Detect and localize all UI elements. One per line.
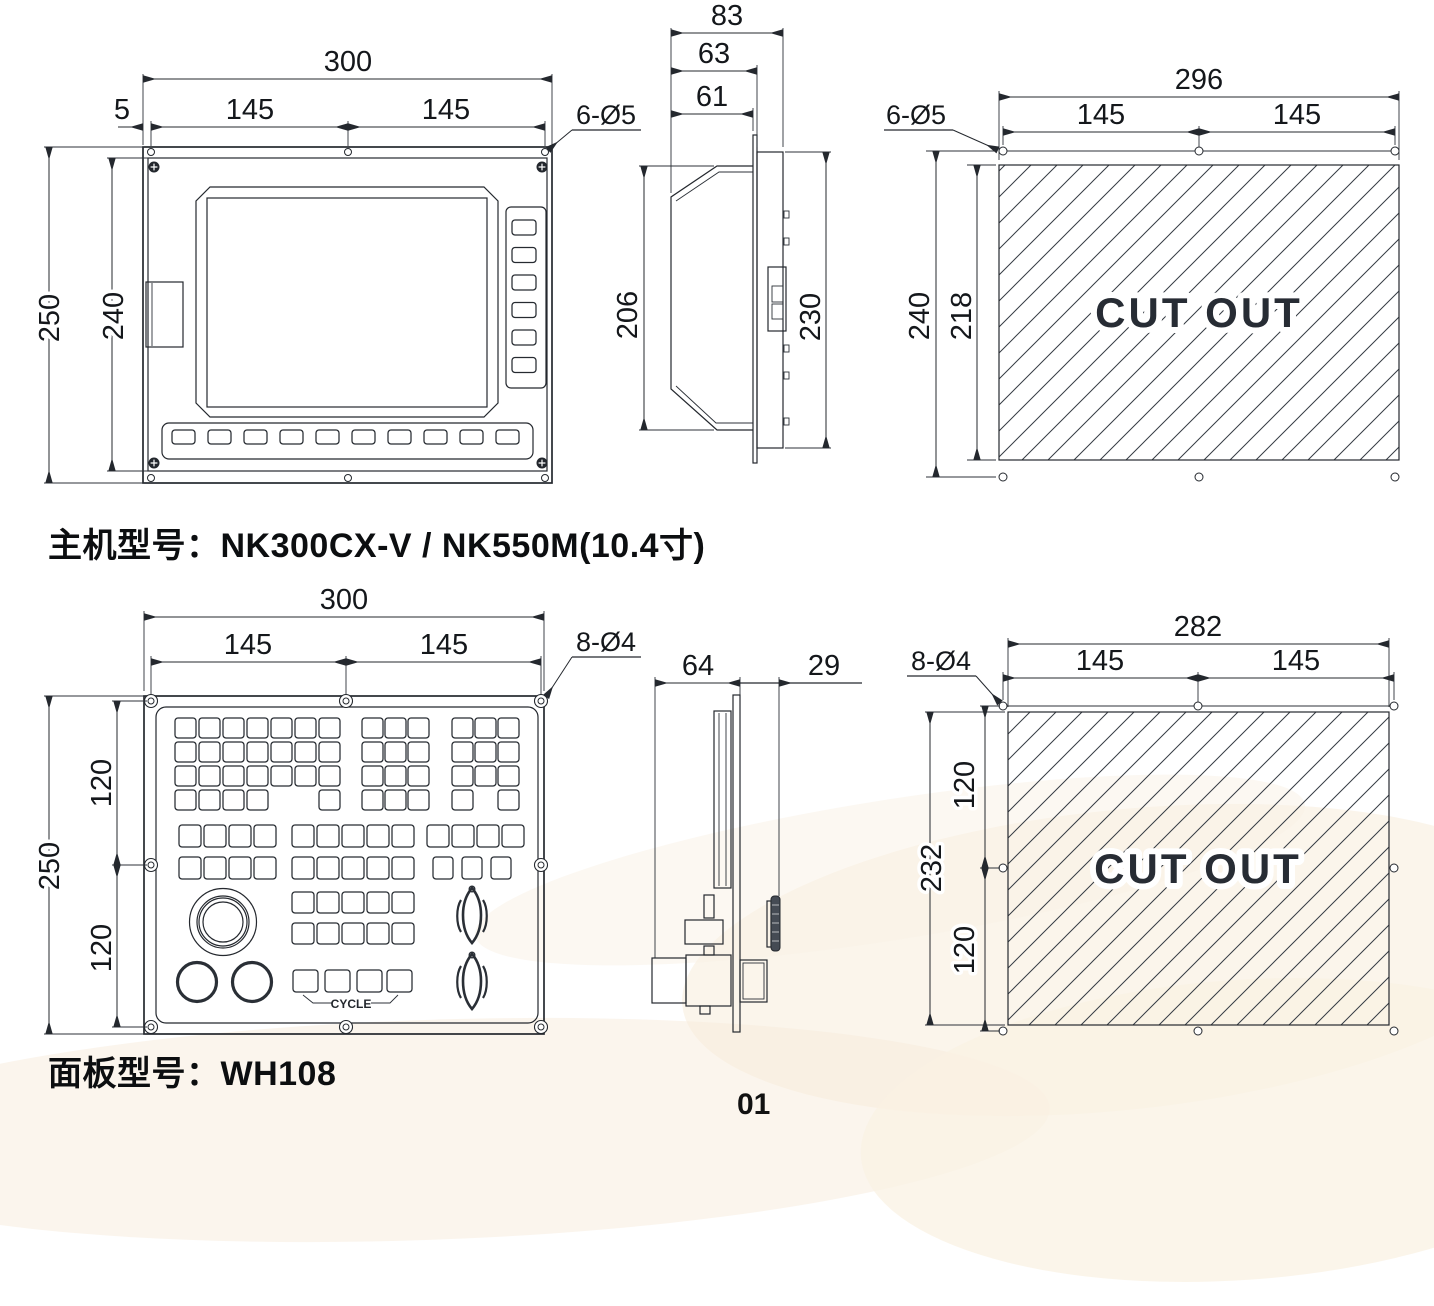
mounting-hole bbox=[345, 149, 352, 156]
key bbox=[342, 892, 364, 913]
key bbox=[477, 825, 499, 847]
svg-text:145: 145 bbox=[226, 94, 274, 126]
svg-text:145: 145 bbox=[1273, 99, 1321, 131]
key bbox=[362, 742, 383, 762]
key bbox=[292, 892, 314, 913]
mounting-hole bbox=[1195, 147, 1203, 155]
key bbox=[452, 766, 473, 786]
key bbox=[316, 430, 339, 444]
key bbox=[342, 923, 364, 944]
key bbox=[175, 766, 196, 786]
key bbox=[367, 923, 389, 944]
panel-key-grid bbox=[175, 718, 524, 992]
svg-text:145: 145 bbox=[1076, 645, 1124, 677]
key bbox=[271, 766, 292, 786]
key bbox=[247, 718, 268, 738]
mounting-hole bbox=[999, 702, 1007, 710]
svg-text:300: 300 bbox=[320, 584, 368, 616]
key bbox=[512, 220, 536, 235]
key bbox=[175, 742, 196, 762]
key bbox=[319, 766, 340, 786]
svg-text:8-Ø4: 8-Ø4 bbox=[911, 646, 971, 676]
mounting-hole bbox=[1195, 473, 1203, 481]
knob-lens bbox=[463, 888, 481, 943]
key bbox=[175, 718, 196, 738]
svg-text:8-Ø4: 8-Ø4 bbox=[576, 627, 636, 657]
svg-text:120: 120 bbox=[949, 761, 981, 809]
svg-text:6-Ø5: 6-Ø5 bbox=[886, 100, 946, 130]
dim-host-side-inner-depth: 61 bbox=[671, 81, 753, 131]
key bbox=[452, 790, 473, 810]
key bbox=[362, 766, 383, 786]
svg-text:5: 5 bbox=[114, 94, 130, 126]
dim-host-cutout-inner-height: 218 bbox=[946, 165, 996, 460]
key bbox=[179, 857, 201, 879]
key bbox=[317, 857, 339, 879]
mounting-hole bbox=[542, 149, 549, 156]
knob-arc-right bbox=[483, 900, 487, 932]
panel-side-front-parts bbox=[740, 896, 780, 1002]
mounting-hole bbox=[148, 475, 155, 482]
key bbox=[199, 766, 220, 786]
svg-text:63: 63 bbox=[698, 38, 730, 70]
mounting-hole bbox=[535, 1021, 548, 1034]
key bbox=[388, 430, 411, 444]
key bbox=[352, 430, 375, 444]
key bbox=[295, 718, 316, 738]
key bbox=[408, 790, 429, 810]
host-flange-outline bbox=[143, 147, 552, 483]
key bbox=[512, 275, 536, 290]
svg-text:145: 145 bbox=[422, 94, 470, 126]
svg-text:218: 218 bbox=[946, 292, 978, 340]
key bbox=[271, 742, 292, 762]
dim-host-front-offset: 5 bbox=[114, 94, 143, 127]
handwheel-knob-profile bbox=[771, 896, 780, 951]
host-side-view: 83 63 61 206 230 bbox=[612, 0, 831, 463]
host-softkey-column bbox=[506, 207, 546, 388]
key bbox=[271, 718, 292, 738]
svg-text:250: 250 bbox=[34, 294, 66, 342]
key bbox=[317, 892, 339, 913]
key bbox=[223, 766, 244, 786]
key bbox=[392, 825, 414, 847]
key bbox=[496, 430, 519, 444]
mounting-hole bbox=[340, 695, 353, 708]
key bbox=[392, 923, 414, 944]
mounting-hole bbox=[999, 864, 1007, 872]
key bbox=[475, 718, 496, 738]
host-flange-plate bbox=[757, 152, 783, 448]
panel-side-rear-parts bbox=[652, 711, 731, 1014]
svg-text:120: 120 bbox=[86, 924, 118, 972]
panel-side-view: 64 29 bbox=[652, 650, 862, 1032]
knob-arc-right bbox=[483, 966, 487, 998]
page-number: 01 bbox=[737, 1088, 770, 1122]
mounting-hole bbox=[999, 473, 1007, 481]
svg-text:240: 240 bbox=[98, 292, 130, 340]
dim-panel-side-rear-depth: 64 bbox=[655, 650, 740, 958]
host-model-title-label: 主机型号： bbox=[48, 527, 221, 565]
dim-panel-front-halves: 145 145 bbox=[151, 629, 541, 694]
key bbox=[433, 857, 453, 879]
mounting-hole bbox=[340, 1021, 353, 1034]
key bbox=[427, 825, 449, 847]
key bbox=[424, 430, 447, 444]
host-screen bbox=[196, 187, 498, 417]
key bbox=[199, 790, 220, 810]
dim-panel-cutout-segments: 120 120 bbox=[949, 706, 1000, 1031]
key bbox=[208, 430, 231, 444]
mounting-hole bbox=[535, 695, 548, 708]
dim-panel-cutout-width: 282 bbox=[1008, 611, 1389, 707]
key bbox=[392, 892, 414, 913]
rotary-knob-icon bbox=[457, 952, 487, 1009]
mounting-hole bbox=[999, 147, 1007, 155]
key bbox=[512, 248, 536, 263]
key bbox=[498, 790, 519, 810]
key bbox=[342, 825, 364, 847]
key bbox=[387, 970, 412, 992]
key bbox=[223, 718, 244, 738]
key bbox=[367, 857, 389, 879]
key bbox=[362, 790, 383, 810]
dim-host-cutout-holes-label: 6-Ø5 bbox=[884, 100, 998, 150]
mounting-hole bbox=[1194, 1027, 1202, 1035]
key bbox=[367, 892, 389, 913]
panel-handwheel bbox=[190, 889, 257, 956]
panel-model-title: 面板型号：WH108 bbox=[48, 1046, 336, 1095]
panel-round-button bbox=[178, 963, 217, 1002]
key bbox=[280, 430, 303, 444]
key bbox=[199, 718, 220, 738]
host-front-view: 300 145 145 5 6-Ø5 250 bbox=[34, 46, 641, 483]
key bbox=[292, 857, 314, 879]
key bbox=[254, 857, 276, 879]
svg-text:206: 206 bbox=[612, 291, 644, 339]
drawing-page: { "host": { "title_label": "主机型号：", "tit… bbox=[0, 0, 1434, 1098]
mounting-hole bbox=[1390, 864, 1398, 872]
host-model-title-value: NK300CX-V / NK550M(10.4寸) bbox=[221, 527, 706, 565]
panel-plate-profile bbox=[733, 695, 740, 1032]
key bbox=[325, 970, 350, 992]
key bbox=[357, 970, 382, 992]
key bbox=[408, 742, 429, 762]
knob-arc-left bbox=[457, 966, 461, 998]
key bbox=[362, 718, 383, 738]
host-bottom-key-strip bbox=[162, 423, 533, 459]
key bbox=[498, 742, 519, 762]
panel-cutout-label: CUT OUT bbox=[1094, 845, 1302, 892]
mounting-hole bbox=[345, 475, 352, 482]
key bbox=[498, 766, 519, 786]
key bbox=[385, 790, 406, 810]
key bbox=[512, 358, 536, 373]
svg-text:29: 29 bbox=[808, 650, 840, 682]
key bbox=[229, 857, 251, 879]
svg-text:145: 145 bbox=[224, 629, 272, 661]
key bbox=[244, 430, 267, 444]
dim-host-side-flange-height: 230 bbox=[785, 152, 831, 448]
host-cutout-label: CUT OUT bbox=[1095, 289, 1303, 336]
mounting-hole bbox=[1391, 473, 1399, 481]
host-card-door bbox=[146, 282, 183, 347]
mounting-hole bbox=[148, 149, 155, 156]
key bbox=[408, 766, 429, 786]
key bbox=[385, 766, 406, 786]
mounting-hole bbox=[535, 859, 548, 872]
mounting-hole bbox=[1194, 702, 1202, 710]
host-model-title: 主机型号：NK300CX-V / NK550M(10.4寸) bbox=[48, 518, 705, 567]
key bbox=[452, 825, 474, 847]
dim-host-front-width: 300 bbox=[143, 46, 552, 145]
dim-panel-front-width: 300 bbox=[144, 584, 544, 691]
key bbox=[254, 825, 276, 847]
host-cutout-view: CUT OUT 296 145 145 6-Ø5 240 bbox=[884, 64, 1399, 481]
key bbox=[317, 825, 339, 847]
mounting-hole bbox=[1390, 702, 1398, 710]
dim-host-side-body-height: 206 bbox=[612, 166, 714, 430]
key bbox=[179, 825, 201, 847]
key bbox=[462, 857, 482, 879]
key bbox=[199, 742, 220, 762]
panel-round-button bbox=[233, 963, 272, 1002]
panel-cycle-group: CYCLE bbox=[303, 995, 398, 1011]
key bbox=[292, 923, 314, 944]
key bbox=[319, 790, 340, 810]
key bbox=[295, 766, 316, 786]
key bbox=[175, 790, 196, 810]
key bbox=[223, 790, 244, 810]
svg-text:145: 145 bbox=[420, 629, 468, 661]
svg-text:296: 296 bbox=[1175, 64, 1223, 96]
dim-panel-cutout-height: 232 bbox=[916, 712, 1005, 1025]
svg-text:83: 83 bbox=[711, 0, 743, 32]
svg-text:64: 64 bbox=[682, 650, 714, 682]
panel-model-title-value: WH108 bbox=[221, 1055, 337, 1093]
key bbox=[452, 742, 473, 762]
key bbox=[295, 742, 316, 762]
key bbox=[247, 790, 268, 810]
dim-host-front-inner-height: 240 bbox=[98, 158, 149, 471]
panel-model-title-label: 面板型号： bbox=[48, 1055, 221, 1093]
svg-text:61: 61 bbox=[696, 81, 728, 113]
key bbox=[385, 718, 406, 738]
key bbox=[229, 825, 251, 847]
key bbox=[408, 718, 429, 738]
svg-text:282: 282 bbox=[1174, 611, 1222, 643]
dim-host-cutout-halves: 145 145 bbox=[1003, 99, 1395, 147]
svg-text:120: 120 bbox=[949, 926, 981, 974]
svg-text:250: 250 bbox=[34, 842, 66, 890]
dim-panel-cutout-holes-label: 8-Ø4 bbox=[907, 646, 1000, 703]
panel-front-view: CYCLE 300 145 145 8-Ø4 250 bbox=[34, 584, 641, 1034]
svg-text:300: 300 bbox=[324, 46, 372, 78]
key bbox=[223, 742, 244, 762]
key bbox=[317, 923, 339, 944]
key bbox=[475, 766, 496, 786]
svg-text:145: 145 bbox=[1077, 99, 1125, 131]
mounting-hole bbox=[1391, 147, 1399, 155]
cycle-label: CYCLE bbox=[331, 997, 372, 1011]
svg-text:232: 232 bbox=[916, 844, 948, 892]
host-housing-profile bbox=[671, 166, 753, 430]
key bbox=[475, 742, 496, 762]
dim-panel-front-segments: 120 120 bbox=[86, 701, 147, 1027]
key bbox=[367, 825, 389, 847]
svg-text:230: 230 bbox=[795, 293, 827, 341]
key bbox=[452, 718, 473, 738]
key bbox=[319, 718, 340, 738]
key bbox=[292, 825, 314, 847]
key bbox=[512, 303, 536, 318]
mounting-hole bbox=[1390, 1027, 1398, 1035]
key bbox=[342, 857, 364, 879]
key bbox=[385, 742, 406, 762]
svg-text:145: 145 bbox=[1272, 645, 1320, 677]
key bbox=[502, 825, 524, 847]
svg-text:6-Ø5: 6-Ø5 bbox=[576, 100, 636, 130]
knob-arc-left bbox=[457, 900, 461, 932]
svg-text:120: 120 bbox=[86, 759, 118, 807]
dim-panel-side-front-depth: 29 bbox=[740, 650, 862, 896]
key bbox=[293, 970, 318, 992]
key bbox=[491, 857, 511, 879]
key bbox=[204, 825, 226, 847]
mounting-hole bbox=[542, 475, 549, 482]
key bbox=[460, 430, 483, 444]
key bbox=[247, 742, 268, 762]
panel-cutout-view: CUT OUT 282 145 145 8-Ø4 232 bbox=[907, 611, 1398, 1035]
key bbox=[392, 857, 414, 879]
dim-host-front-holes: 6-Ø5 bbox=[548, 100, 641, 150]
key bbox=[247, 766, 268, 786]
dim-panel-front-holes: 8-Ø4 bbox=[546, 627, 641, 697]
key bbox=[204, 857, 226, 879]
knob-lens bbox=[463, 954, 481, 1009]
key bbox=[319, 742, 340, 762]
rotary-knob-icon bbox=[457, 886, 487, 943]
mounting-hole bbox=[999, 1027, 1007, 1035]
key bbox=[512, 330, 536, 345]
key bbox=[172, 430, 195, 444]
key bbox=[498, 718, 519, 738]
panel-rotary-knobs bbox=[457, 886, 487, 1009]
svg-text:240: 240 bbox=[904, 292, 936, 340]
dim-host-front-halves: 145 145 bbox=[151, 94, 545, 146]
dim-panel-cutout-halves: 145 145 bbox=[1003, 645, 1394, 702]
